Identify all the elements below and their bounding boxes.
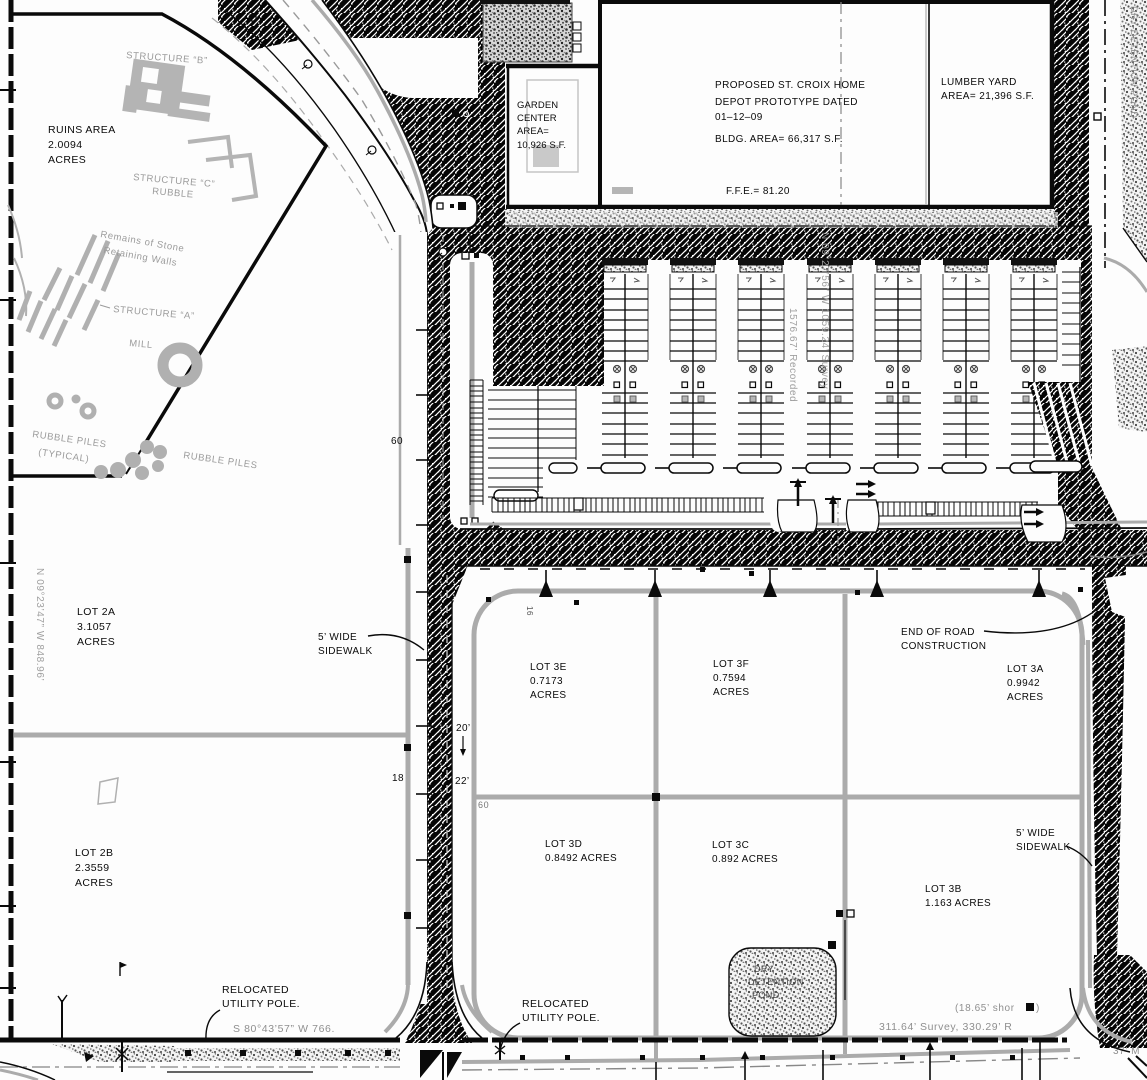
- svg-text:DETENTION: DETENTION: [748, 977, 804, 987]
- svg-text:LOT 2B: LOT 2B: [75, 847, 113, 859]
- svg-text:ACRES: ACRES: [1007, 692, 1043, 703]
- svg-text:RELOCATED: RELOCATED: [222, 984, 289, 996]
- svg-text:(18.65’ shor: (18.65’ shor: [955, 1003, 1015, 1014]
- svg-text:GARDEN: GARDEN: [517, 100, 558, 111]
- svg-text:22’: 22’: [455, 776, 470, 787]
- svg-text:0.9942: 0.9942: [1007, 678, 1040, 689]
- svg-text:60: 60: [478, 800, 489, 810]
- svg-text:N 09°23’47” W 848.96’: N 09°23’47” W 848.96’: [34, 568, 45, 681]
- svg-text:1576.67’ Recorded: 1576.67’ Recorded: [787, 308, 798, 402]
- svg-text:SIDEWALK: SIDEWALK: [318, 646, 373, 657]
- svg-text:16: 16: [525, 606, 534, 616]
- svg-text:LOT 3E: LOT 3E: [530, 662, 567, 673]
- svg-text:POND: POND: [752, 990, 780, 1000]
- svg-text:0.7173: 0.7173: [530, 676, 563, 687]
- svg-text:S 80°43’57” W 766.: S 80°43’57” W 766.: [233, 1023, 335, 1035]
- svg-text:ACRES: ACRES: [77, 636, 115, 648]
- svg-text:1.163 ACRES: 1.163 ACRES: [925, 898, 991, 909]
- svg-text:BLDG. AREA= 66,317 S.F.: BLDG. AREA= 66,317 S.F.: [715, 134, 843, 145]
- svg-text:CONSTRUCTION: CONSTRUCTION: [901, 641, 986, 652]
- svg-text:F.F.E.= 81.20: F.F.E.= 81.20: [726, 186, 790, 197]
- svg-text:LOT 3B: LOT 3B: [925, 884, 962, 895]
- svg-text:CENTER: CENTER: [517, 113, 557, 124]
- svg-text:60: 60: [391, 436, 403, 447]
- svg-text:LOT 3D: LOT 3D: [545, 839, 582, 850]
- svg-text:UTILITY POLE.: UTILITY POLE.: [522, 1012, 600, 1024]
- svg-text:PROPOSED ST. CROIX HOME: PROPOSED ST. CROIX HOME: [715, 80, 865, 91]
- svg-text:ACRES: ACRES: [48, 154, 86, 166]
- svg-text:5’ WIDE: 5’ WIDE: [1016, 828, 1055, 839]
- svg-text:0.7594: 0.7594: [713, 673, 746, 684]
- svg-text:0.892 ACRES: 0.892 ACRES: [712, 854, 778, 865]
- svg-text:RUINS AREA: RUINS AREA: [48, 124, 116, 136]
- svg-text:DRY DETENTION POND: DRY DETENTION POND: [1129, 6, 1139, 118]
- svg-text:MILL: MILL: [129, 338, 153, 351]
- svg-text:ACRES: ACRES: [530, 690, 566, 701]
- svg-text:LOT 3F: LOT 3F: [713, 659, 749, 670]
- svg-text:5’ WIDE: 5’ WIDE: [318, 632, 357, 643]
- svg-text:AREA= 21,396 S.F.: AREA= 21,396 S.F.: [941, 91, 1034, 102]
- svg-text:ACRES: ACRES: [713, 687, 749, 698]
- svg-text:END OF ROAD: END OF ROAD: [901, 627, 975, 638]
- svg-text:20’: 20’: [456, 723, 471, 734]
- svg-text:10,926 S.F.: 10,926 S.F.: [517, 140, 566, 151]
- svg-text:0.8492 ACRES: 0.8492 ACRES: [545, 853, 617, 864]
- svg-text:3.1057: 3.1057: [77, 621, 112, 633]
- svg-text:2.0094: 2.0094: [48, 139, 83, 151]
- svg-text:LOT 2A: LOT 2A: [77, 606, 115, 618]
- svg-text:2.3559: 2.3559: [75, 862, 110, 874]
- svg-text:01–12–09: 01–12–09: [715, 112, 763, 123]
- svg-text:SIDEWALK: SIDEWALK: [1016, 842, 1071, 853]
- svg-text:311.64’ Survey, 330.29’ R: 311.64’ Survey, 330.29’ R: [879, 1021, 1013, 1033]
- svg-text:): ): [1036, 1003, 1040, 1014]
- svg-text:RELOCATED: RELOCATED: [522, 998, 589, 1010]
- svg-text:ACRES: ACRES: [75, 877, 113, 889]
- svg-text:LUMBER YARD: LUMBER YARD: [941, 77, 1017, 88]
- svg-text:LOT 3C: LOT 3C: [712, 840, 749, 851]
- svg-text:N 09°27’56” W 1059.24’ Surve: N 09°27’56” W 1059.24’ Survey: [819, 232, 830, 389]
- svg-text:DRY: DRY: [754, 964, 774, 974]
- svg-text:LOT 3A: LOT 3A: [1007, 664, 1044, 675]
- svg-text:AREA=: AREA=: [517, 126, 549, 137]
- svg-text:DEPOT PROTOTYPE DATED: DEPOT PROTOTYPE DATED: [715, 97, 858, 108]
- svg-text:18: 18: [392, 773, 404, 784]
- svg-text:UTILITY POLE.: UTILITY POLE.: [222, 998, 300, 1010]
